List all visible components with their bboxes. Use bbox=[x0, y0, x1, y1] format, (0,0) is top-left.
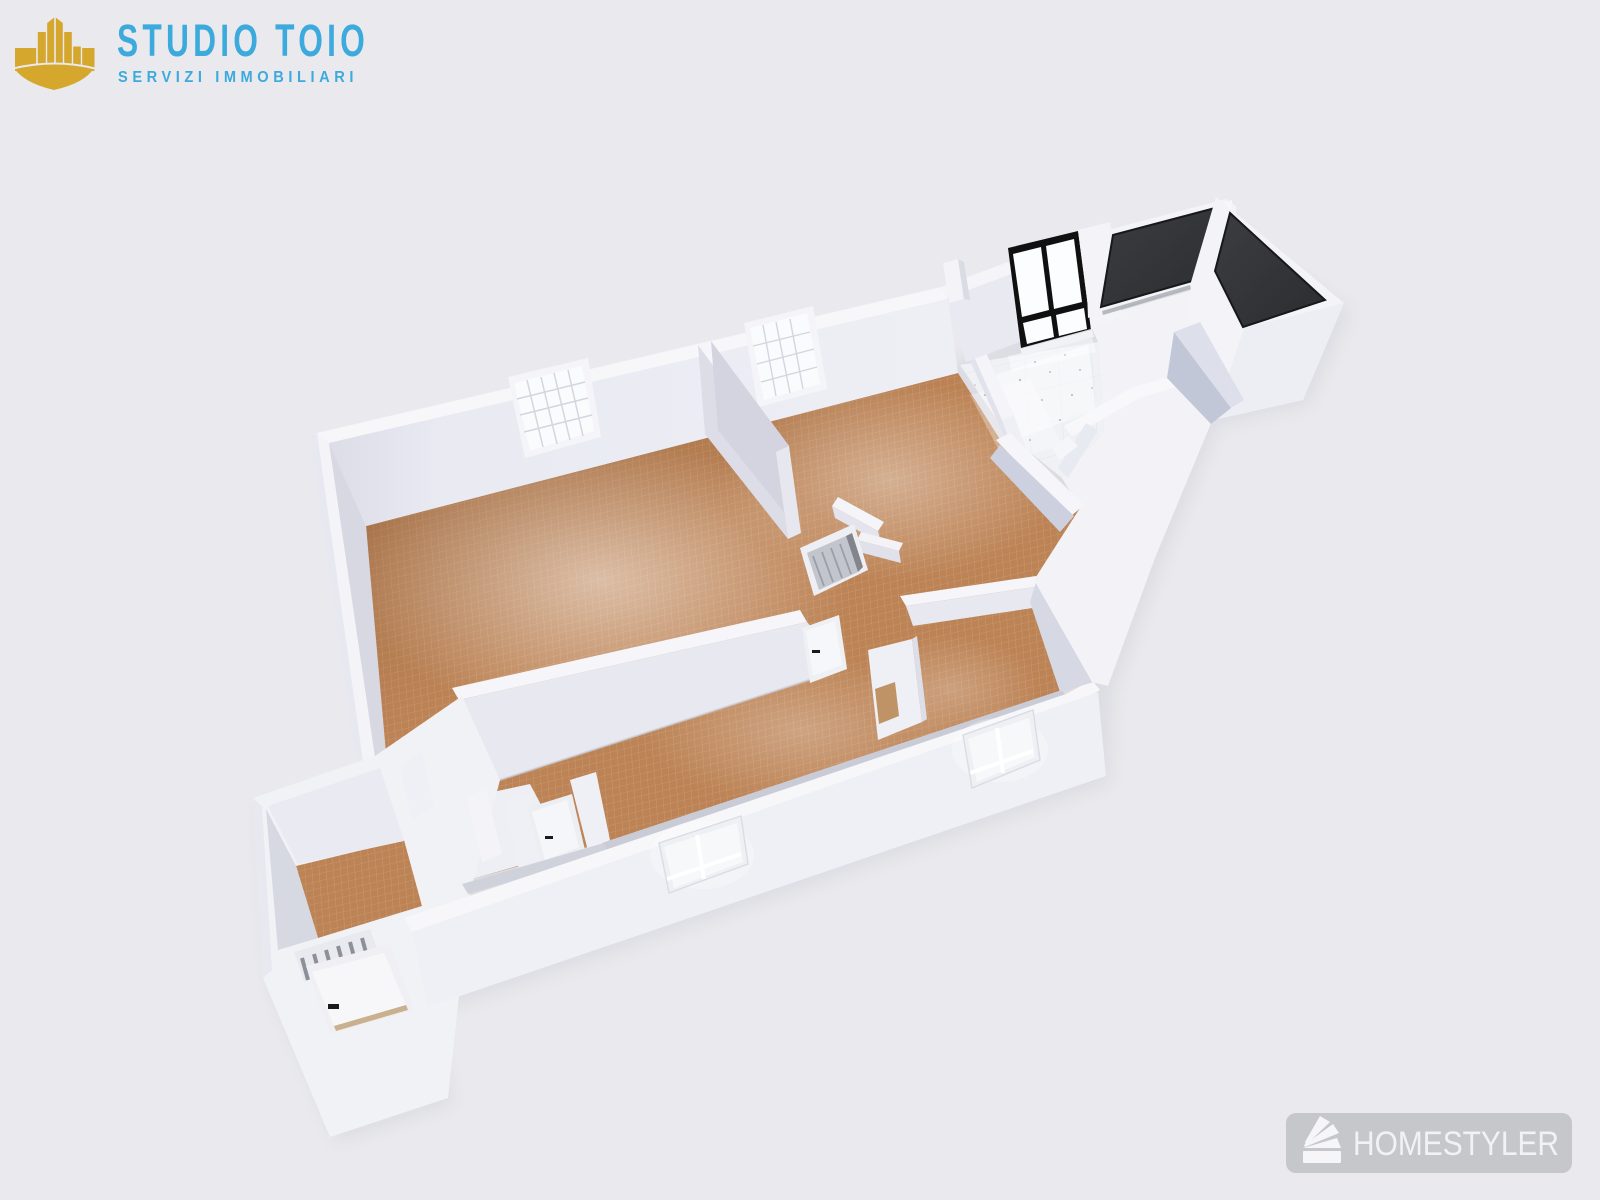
svg-text:STUDIO TOIO: STUDIO TOIO bbox=[117, 15, 369, 66]
svg-text:HOMESTYLER: HOMESTYLER bbox=[1353, 1125, 1559, 1163]
svg-text:SERVIZI IMMOBILIARI: SERVIZI IMMOBILIARI bbox=[118, 69, 358, 86]
